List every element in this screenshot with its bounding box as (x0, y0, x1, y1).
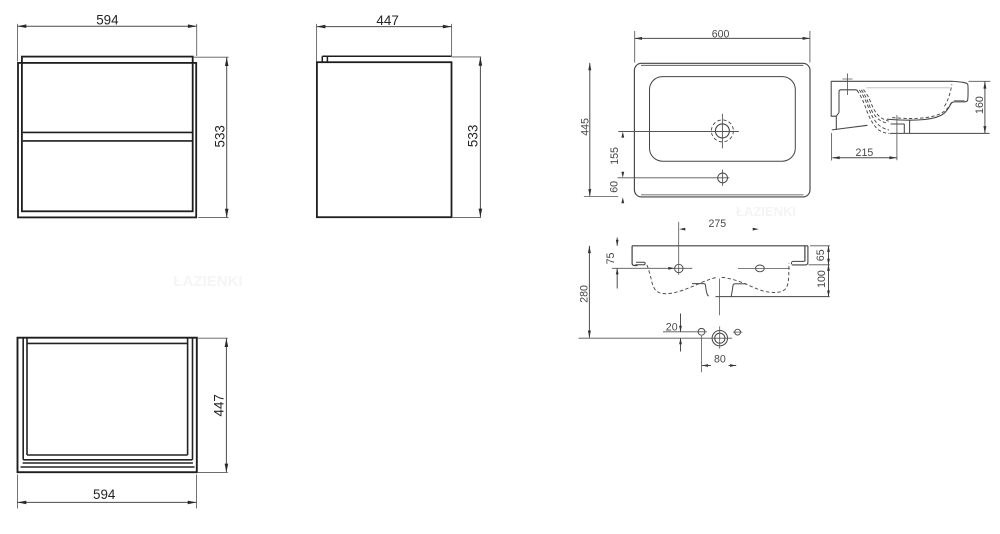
svg-text:75: 75 (605, 253, 617, 265)
svg-text:160: 160 (974, 96, 986, 114)
svg-text:594: 594 (96, 13, 119, 28)
svg-text:533: 533 (212, 125, 227, 147)
svg-text:533: 533 (465, 125, 480, 147)
svg-text:447: 447 (376, 13, 398, 28)
svg-text:ŁAZIENKI: ŁAZIENKI (736, 204, 796, 219)
svg-text:275: 275 (708, 218, 726, 230)
svg-text:80: 80 (714, 353, 726, 365)
svg-text:20: 20 (666, 321, 678, 333)
svg-text:447: 447 (211, 394, 226, 416)
svg-text:215: 215 (856, 147, 874, 159)
svg-text:594: 594 (93, 487, 116, 502)
svg-text:600: 600 (712, 28, 730, 40)
svg-text:280: 280 (578, 285, 590, 303)
svg-text:ŁAZIENKI: ŁAZIENKI (173, 273, 242, 290)
svg-text:445: 445 (580, 118, 592, 136)
svg-text:100: 100 (816, 270, 828, 288)
svg-text:155: 155 (609, 147, 621, 165)
svg-text:65: 65 (815, 249, 827, 261)
svg-text:60: 60 (608, 181, 620, 193)
